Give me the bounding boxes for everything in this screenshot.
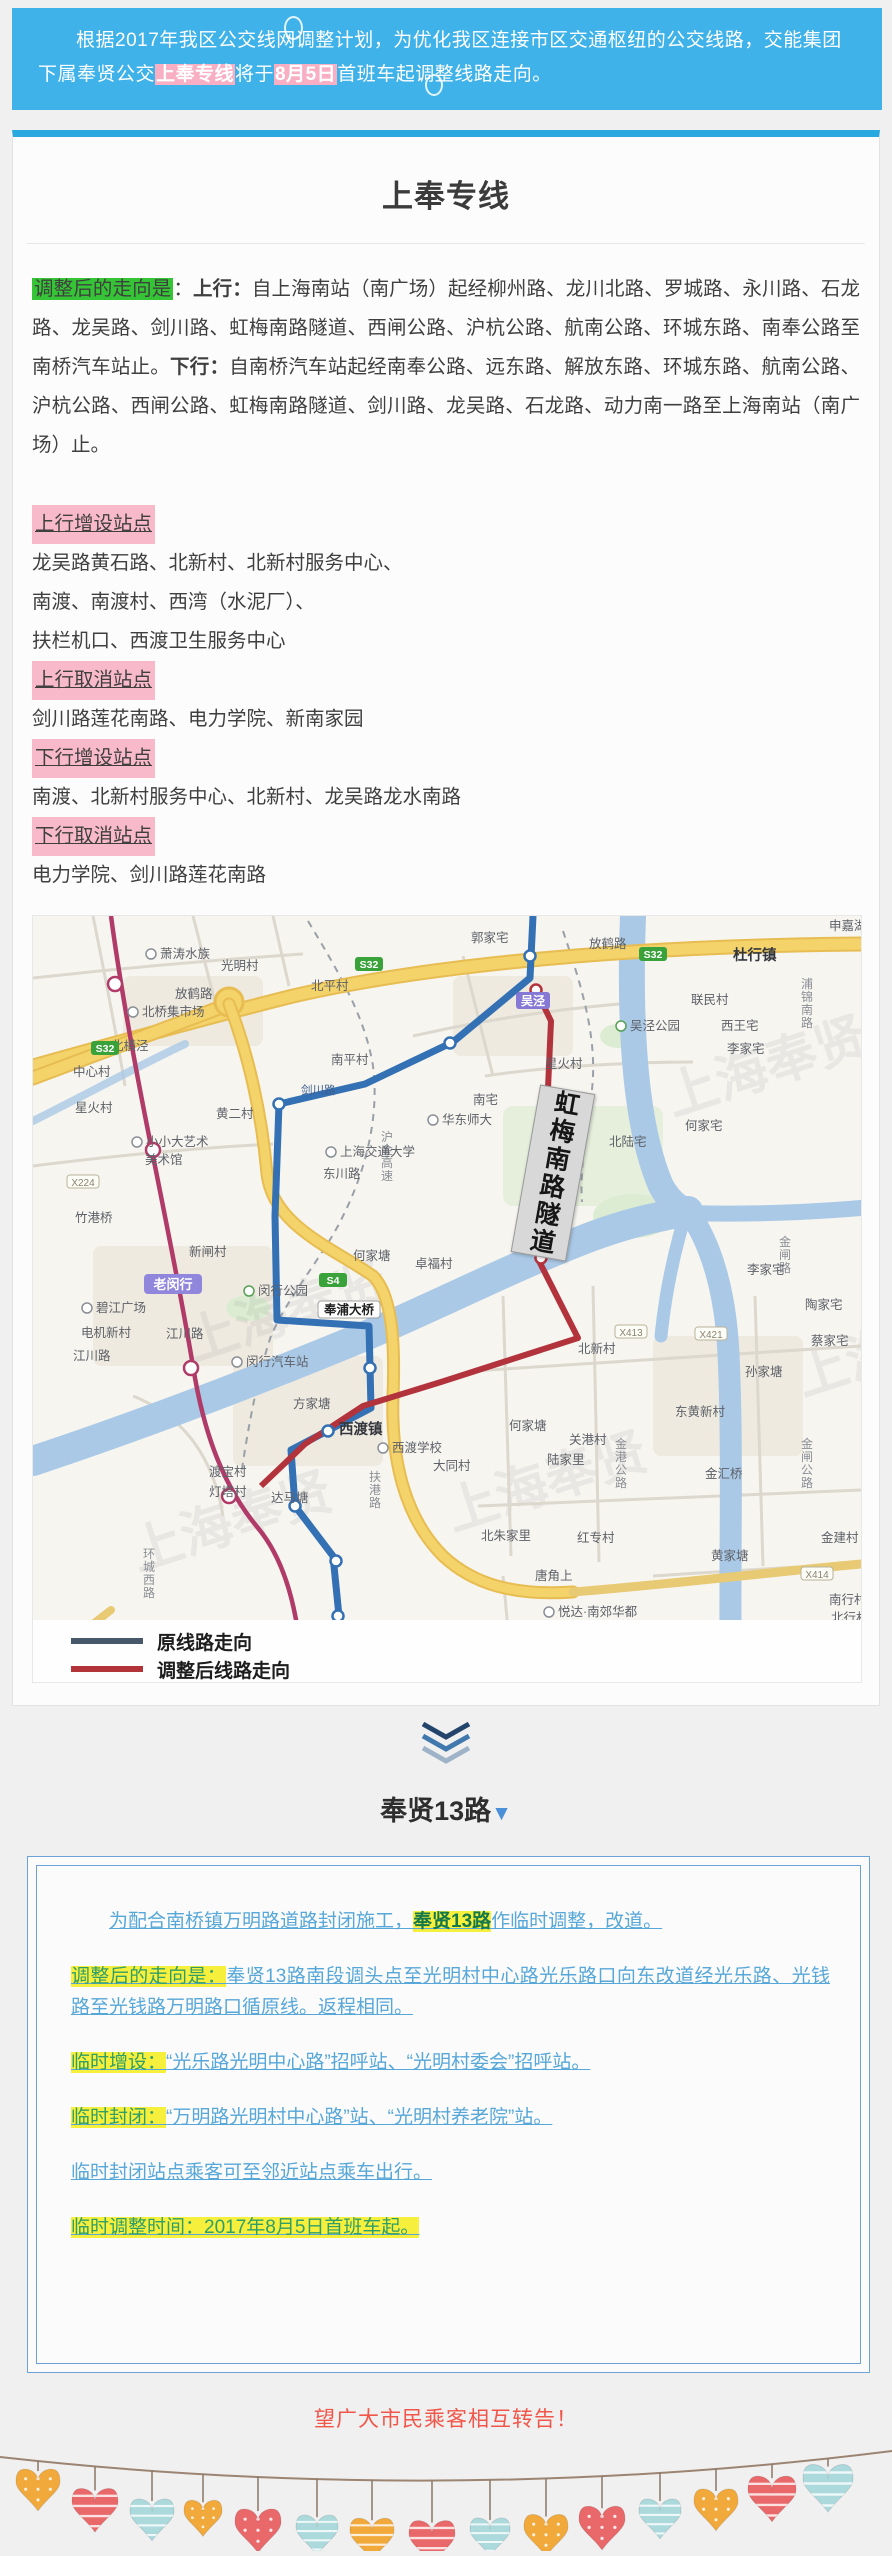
- svg-text:达马塘: 达马塘: [271, 1490, 309, 1505]
- map-image: 上海奉贤上海奉贤上海奉贤上海奉贤上海奉贤: [33, 916, 861, 1682]
- triangle-down-icon: ▼: [491, 1802, 512, 1825]
- svg-text:大同村: 大同村: [433, 1459, 471, 1473]
- notice-paragraph: 临时调整时间：2017年8月5日首班车起。: [71, 2212, 830, 2243]
- svg-text:渡宝村: 渡宝村: [209, 1464, 247, 1479]
- station-section-header: 下行增设站点: [32, 739, 155, 778]
- svg-text:北陆宅: 北陆宅: [609, 1134, 647, 1149]
- svg-text:星火村: 星火村: [545, 1057, 583, 1071]
- svg-text:西王宅: 西王宅: [721, 1018, 759, 1033]
- svg-text:碧江广场: 碧江广场: [96, 1301, 146, 1315]
- svg-text:东黄新村: 东黄新村: [675, 1404, 726, 1419]
- svg-text:郭家宅: 郭家宅: [471, 930, 509, 945]
- page-title: 上奉专线: [13, 137, 879, 243]
- shangfeng-line-card: 上奉专线 调整后的走向是：上行：自上海南站（南广场）起经柳州路、龙川北路、罗城路…: [12, 130, 880, 1706]
- svg-text:南宅: 南宅: [473, 1092, 498, 1107]
- svg-text:环城西路: 环城西路: [143, 1547, 155, 1600]
- footer-notice: 望广大市民乘客相互转告！: [0, 2403, 892, 2433]
- svg-text:S32: S32: [644, 949, 663, 961]
- station-changes: 上行增设站点龙吴路黄石路、北新村、北新村服务中心、南渡、南渡村、西湾（水泥厂）、…: [32, 505, 860, 895]
- svg-text:江川路: 江川路: [73, 1348, 111, 1363]
- svg-text:闵行公园: 闵行公园: [258, 1283, 308, 1298]
- legend-label-adjusted: 调整后线路走向: [157, 1656, 290, 1683]
- svg-text:何家塘: 何家塘: [353, 1248, 391, 1263]
- svg-text:陶家宅: 陶家宅: [805, 1297, 843, 1312]
- station-section-header: 下行取消站点: [32, 817, 155, 856]
- route-description: 调整后的走向是：上行：自上海南站（南广场）起经柳州路、龙川北路、罗城路、永川路、…: [32, 270, 860, 465]
- svg-text:蔡家宅: 蔡家宅: [811, 1333, 849, 1348]
- svg-text:金闸公路: 金闸公路: [801, 1436, 813, 1490]
- svg-text:华东师大: 华东师大: [442, 1112, 492, 1127]
- svg-text:唐角上: 唐角上: [535, 1568, 573, 1583]
- notice-box: 为配合南桥镇万明路道路封闭施工，奉贤13路作临时调整，改道。调整后的走向是：奉贤…: [27, 1856, 870, 2373]
- svg-text:小小大艺术: 小小大艺术: [146, 1135, 209, 1149]
- svg-text:扶港路: 扶港路: [369, 1469, 381, 1510]
- legend-swatch-adjusted: [71, 1666, 143, 1672]
- svg-text:金港公路: 金港公路: [615, 1436, 627, 1490]
- svg-text:吴泾: 吴泾: [521, 994, 545, 1008]
- svg-text:美术馆: 美术馆: [145, 1152, 183, 1167]
- station-list-line: 扶栏机口、西渡卫生服务中心: [32, 622, 860, 661]
- svg-text:X421: X421: [699, 1330, 723, 1341]
- svg-text:南平村: 南平村: [331, 1052, 369, 1067]
- svg-text:中心村: 中心村: [73, 1064, 111, 1079]
- svg-text:卓福村: 卓福村: [415, 1256, 453, 1271]
- svg-text:北桥集市场: 北桥集市场: [142, 1004, 205, 1019]
- notice-paragraph: 临时增设：“光乐路光明中心路”招呼站、“光明村委会”招呼站。: [71, 2047, 830, 2078]
- svg-text:江川路: 江川路: [166, 1326, 204, 1341]
- notice-paragraph: 调整后的走向是：奉贤13路南段调头点至光明村中心路光乐路口向东改道经光乐路、光钱…: [71, 1961, 830, 2023]
- svg-text:西渡学校: 西渡学校: [392, 1440, 443, 1455]
- station-list-line: 龙吴路黄石路、北新村、北新村服务中心、: [32, 544, 860, 583]
- hearts-garland: [0, 2443, 892, 2556]
- svg-text:上海交通大学: 上海交通大学: [340, 1144, 415, 1159]
- svg-text:杜行镇: 杜行镇: [733, 946, 777, 964]
- svg-text:西渡镇: 西渡镇: [339, 1420, 383, 1438]
- svg-text:北平村: 北平村: [311, 979, 349, 993]
- svg-text:金建村: 金建村: [821, 1530, 859, 1545]
- line-name-highlight: 上奉专线: [155, 64, 235, 85]
- svg-text:S4: S4: [327, 1275, 340, 1287]
- svg-text:萧涛水族: 萧涛水族: [160, 946, 211, 961]
- svg-text:星火村: 星火村: [75, 1101, 113, 1115]
- fengxian-13-title: 奉贤13路▼: [0, 1789, 892, 1828]
- divider: [27, 243, 865, 244]
- notice-paragraph: 为配合南桥镇万明路道路封闭施工，奉贤13路作临时调整，改道。: [71, 1906, 830, 1937]
- svg-text:光明村: 光明村: [221, 959, 259, 973]
- svg-text:联民村: 联民村: [691, 993, 729, 1007]
- svg-text:闵行汽车站: 闵行汽车站: [246, 1354, 309, 1369]
- station-list-line: 电力学院、剑川路莲花南路: [32, 856, 860, 895]
- svg-text:南行村: 南行村: [829, 1592, 861, 1607]
- svg-text:方家塘: 方家塘: [293, 1396, 331, 1411]
- legend-swatch-original: [71, 1638, 143, 1644]
- svg-text:何家宅: 何家宅: [685, 1118, 723, 1133]
- svg-text:竹港桥: 竹港桥: [75, 1211, 113, 1225]
- section-separator: [0, 1706, 892, 1775]
- bubble-decoration: [425, 74, 443, 96]
- legend-label-original: 原线路走向: [157, 1628, 252, 1655]
- station-list-line: 南渡、北新村服务中心、北新村、龙吴路龙水南路: [32, 778, 860, 817]
- svg-text:北新村: 北新村: [578, 1341, 616, 1356]
- svg-text:放鹤路: 放鹤路: [175, 986, 213, 1001]
- svg-text:S32: S32: [96, 1043, 115, 1055]
- svg-text:X224: X224: [71, 1178, 95, 1189]
- hearts-garland-image: [0, 2443, 892, 2551]
- notice-box-content: 为配合南桥镇万明路道路封闭施工，奉贤13路作临时调整，改道。调整后的走向是：奉贤…: [36, 1865, 861, 2364]
- svg-text:黄家塘: 黄家塘: [711, 1548, 749, 1563]
- svg-text:X413: X413: [619, 1328, 643, 1339]
- svg-text:何家塘: 何家塘: [509, 1418, 547, 1433]
- svg-text:关港村: 关港村: [569, 1433, 607, 1447]
- svg-text:黄二村: 黄二村: [216, 1107, 254, 1121]
- map-legend: 原线路走向 调整后线路走向: [33, 1620, 861, 1682]
- svg-text:奉浦大桥: 奉浦大桥: [323, 1302, 375, 1317]
- svg-text:新闸村: 新闸村: [189, 1244, 227, 1259]
- notice-paragraph: 临时封闭：“万明路光明村中心路”站、“光明村养老院”站。: [71, 2102, 830, 2133]
- svg-text:放鹤路: 放鹤路: [589, 936, 627, 951]
- station-section-header: 上行取消站点: [32, 661, 155, 700]
- station-section-header: 上行增设站点: [32, 505, 155, 544]
- date-highlight: 8月5日: [274, 64, 337, 85]
- bubble-decoration: [284, 16, 303, 40]
- svg-text:东川路: 东川路: [323, 1166, 361, 1181]
- station-list-line: 剑川路莲花南路、电力学院、新南家园: [32, 700, 860, 739]
- svg-text:红专村: 红专村: [577, 1530, 615, 1545]
- svg-text:电机新村: 电机新村: [81, 1325, 132, 1340]
- svg-text:李家宅: 李家宅: [747, 1262, 785, 1277]
- notice-paragraph: 临时封闭站点乘客可至邻近站点乘车出行。: [71, 2157, 830, 2188]
- svg-text:老闵行: 老闵行: [152, 1277, 192, 1292]
- svg-text:吴泾公园: 吴泾公园: [630, 1019, 680, 1033]
- svg-text:S32: S32: [360, 959, 379, 971]
- svg-text:申嘉湖: 申嘉湖: [829, 918, 861, 933]
- svg-text:X414: X414: [805, 1570, 829, 1581]
- chevron-down-icon: [417, 1720, 475, 1766]
- banner-text: 根据2017年我区公交线网调整计划，为优化我区连接市区交通枢纽的公交线路，交能集…: [38, 24, 856, 92]
- svg-text:剑川路: 剑川路: [301, 1083, 336, 1097]
- route-map: 上海奉贤上海奉贤上海奉贤上海奉贤上海奉贤: [32, 915, 862, 1683]
- svg-text:浦锦南路: 浦锦南路: [801, 977, 813, 1030]
- svg-text:灯塔村: 灯塔村: [209, 1485, 247, 1499]
- svg-text:李家宅: 李家宅: [727, 1041, 765, 1056]
- svg-text:陆家里: 陆家里: [547, 1452, 585, 1467]
- svg-text:北朱家里: 北朱家里: [481, 1528, 531, 1543]
- svg-text:孙家塘: 孙家塘: [745, 1364, 783, 1379]
- svg-text:金汇桥: 金汇桥: [705, 1466, 743, 1481]
- svg-text:悦达·南郊华都: 悦达·南郊华都: [558, 1604, 638, 1619]
- announcement-banner: 根据2017年我区公交线网调整计划，为优化我区连接市区交通枢纽的公交线路，交能集…: [12, 8, 882, 110]
- station-list-line: 南渡、南渡村、西湾（水泥厂）、: [32, 583, 860, 622]
